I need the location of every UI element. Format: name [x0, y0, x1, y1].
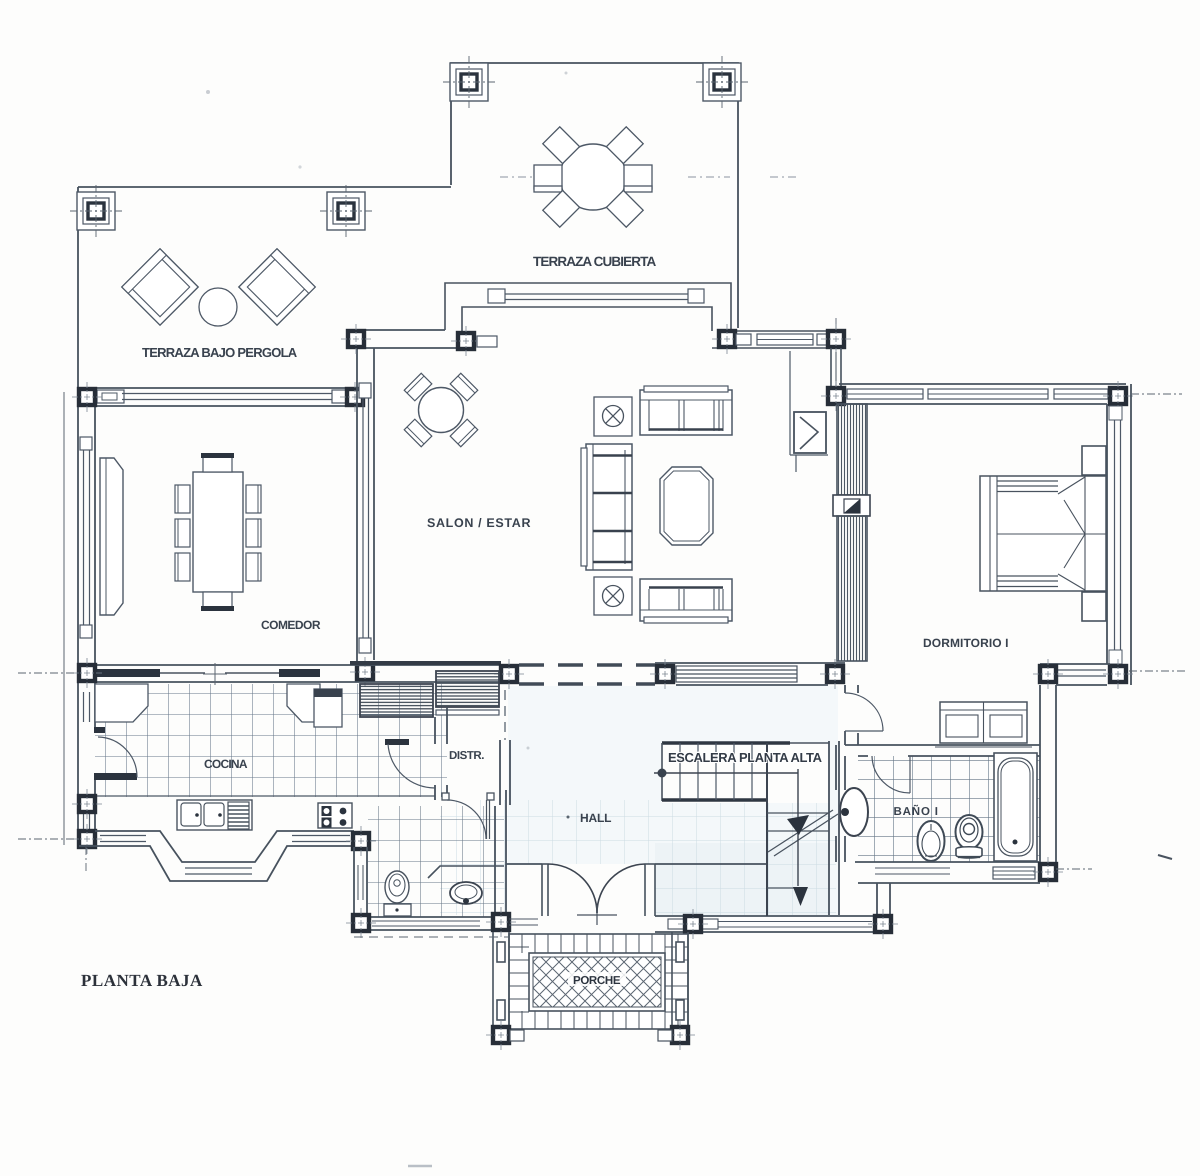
svg-text:BAÑO I: BAÑO I — [894, 804, 939, 818]
svg-text:COMEDOR: COMEDOR — [261, 618, 321, 632]
svg-text:TERRAZA BAJO PERGOLA: TERRAZA BAJO PERGOLA — [142, 345, 298, 360]
svg-text:DISTR.: DISTR. — [449, 750, 485, 762]
svg-text:HALL: HALL — [580, 811, 612, 825]
svg-text:SALON / ESTAR: SALON / ESTAR — [427, 516, 531, 530]
svg-text:DORMITORIO I: DORMITORIO I — [923, 636, 1009, 650]
svg-text:PLANTA BAJA: PLANTA BAJA — [81, 971, 203, 990]
svg-text:PORCHE: PORCHE — [573, 975, 621, 987]
svg-text:ESCALERA PLANTA ALTA: ESCALERA PLANTA ALTA — [668, 750, 823, 765]
svg-text:TERRAZA CUBIERTA: TERRAZA CUBIERTA — [533, 254, 657, 269]
svg-text:COCINA: COCINA — [204, 757, 248, 771]
